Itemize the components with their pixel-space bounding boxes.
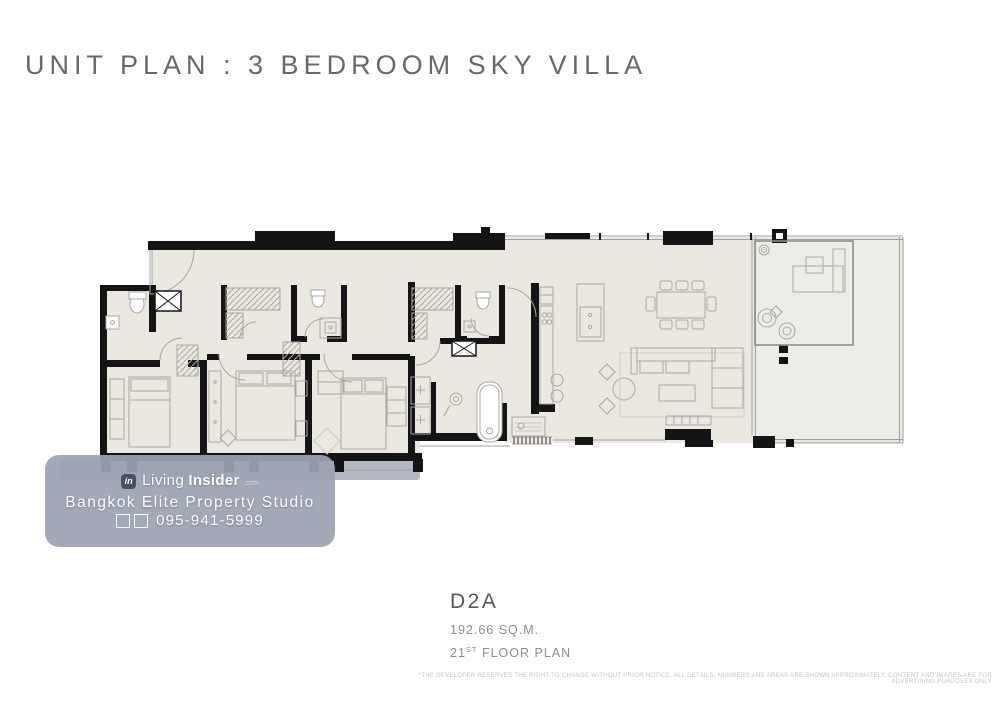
watermark-panel: in Living Insider .com Bangkok Elite Pro… xyxy=(45,455,335,547)
watermark-phone-row: 095-941-5999 xyxy=(116,512,264,531)
unit-code: D2A xyxy=(450,590,571,614)
unit-floor: 21ST FLOOR PLAN xyxy=(450,645,571,660)
unit-area: 192.66 SQ.M. xyxy=(450,623,571,637)
brand-suffix: Insider xyxy=(188,472,239,491)
social-square-icon-2 xyxy=(134,514,148,528)
watermark-brand-row: in Living Insider .com xyxy=(121,472,259,491)
phone-number: 095-941-5999 xyxy=(156,512,264,531)
floor-ordinal: ST xyxy=(466,645,478,654)
facade-column-core xyxy=(776,233,783,239)
studio-name: Bangkok Elite Property Studio xyxy=(65,494,314,512)
brand-tld: .com xyxy=(244,480,259,489)
living-insider-logo-icon: in xyxy=(121,474,136,489)
floor-plan-sheet: UNIT PLAN : 3 BEDROOM SKY VILLA xyxy=(0,0,1000,703)
floor-number: 21 xyxy=(450,646,466,660)
brand-prefix: Living xyxy=(142,472,184,491)
floor-label: FLOOR PLAN xyxy=(478,646,572,660)
social-square-icon-1 xyxy=(116,514,130,528)
unit-info-block: D2A 192.66 SQ.M. 21ST FLOOR PLAN xyxy=(450,590,571,660)
disclaimer-text: *THE DEVELOPER RESERVES THE RIGHT TO CHA… xyxy=(392,673,992,685)
